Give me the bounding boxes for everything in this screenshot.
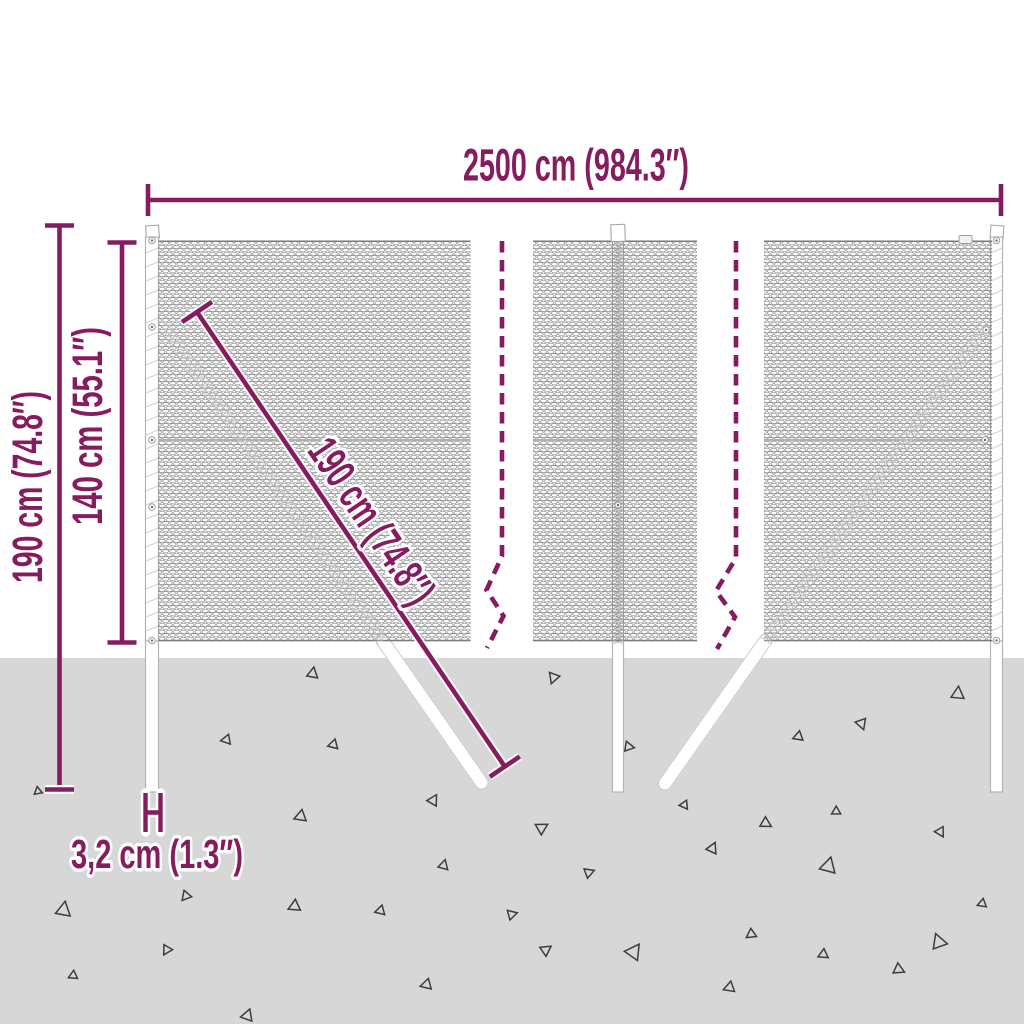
svg-text:2500 cm (984.3″): 2500 cm (984.3″) (463, 140, 689, 191)
svg-text:140 cm (55.1″): 140 cm (55.1″) (64, 327, 112, 525)
svg-text:3,2 cm (1.3″): 3,2 cm (1.3″) (71, 831, 243, 877)
svg-text:190 cm (74.8″): 190 cm (74.8″) (4, 391, 52, 583)
